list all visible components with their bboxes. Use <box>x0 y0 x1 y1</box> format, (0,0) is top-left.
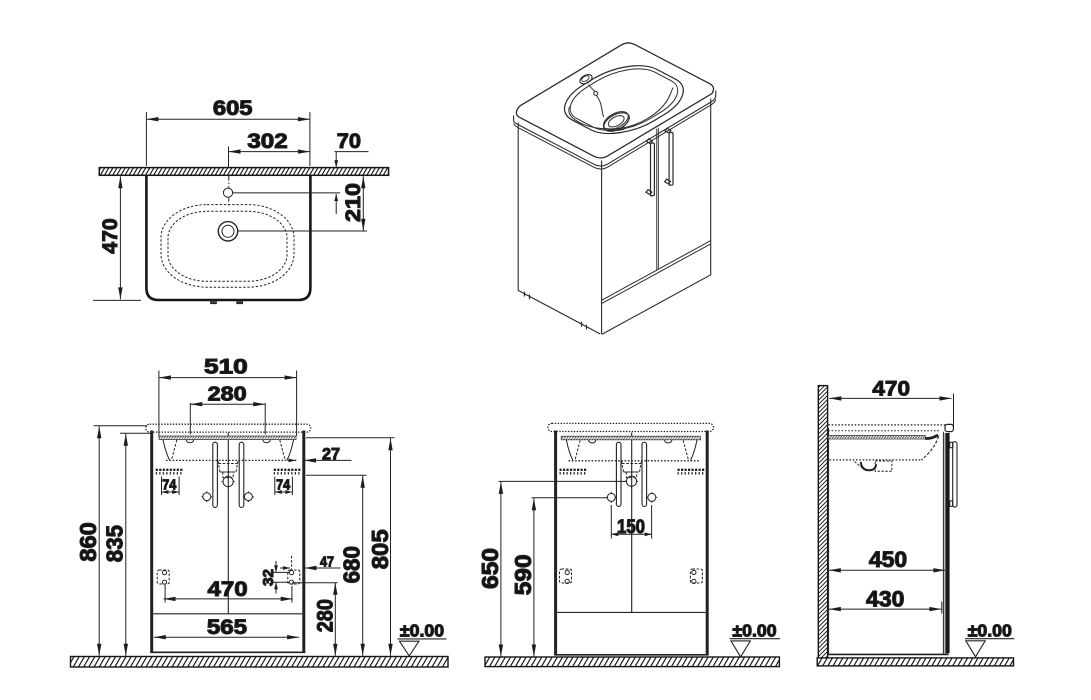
svg-text:805: 805 <box>367 529 393 569</box>
svg-text:32: 32 <box>260 569 277 586</box>
svg-text:280: 280 <box>208 384 247 406</box>
svg-text:150: 150 <box>617 517 645 538</box>
svg-text:302: 302 <box>247 130 287 153</box>
svg-text:470: 470 <box>99 218 122 253</box>
svg-text:680: 680 <box>338 546 364 583</box>
svg-text:±0.00: ±0.00 <box>732 621 776 641</box>
svg-text:210: 210 <box>341 183 365 222</box>
svg-text:74: 74 <box>162 477 177 493</box>
svg-text:±0.00: ±0.00 <box>968 621 1012 641</box>
svg-text:860: 860 <box>75 522 101 561</box>
svg-text:605: 605 <box>213 97 253 120</box>
svg-text:470: 470 <box>872 377 910 401</box>
svg-text:74: 74 <box>276 477 291 493</box>
svg-text:470: 470 <box>208 578 248 601</box>
svg-text:70: 70 <box>337 130 361 153</box>
svg-text:27: 27 <box>322 444 340 463</box>
svg-text:565: 565 <box>207 616 247 639</box>
svg-text:±0.00: ±0.00 <box>400 621 444 641</box>
svg-text:280: 280 <box>312 599 337 632</box>
svg-text:835: 835 <box>102 525 128 562</box>
svg-text:47: 47 <box>320 554 334 571</box>
svg-text:430: 430 <box>866 586 904 611</box>
svg-text:450: 450 <box>869 547 907 572</box>
svg-text:590: 590 <box>510 554 536 595</box>
svg-text:510: 510 <box>204 356 248 379</box>
svg-text:650: 650 <box>477 548 503 589</box>
